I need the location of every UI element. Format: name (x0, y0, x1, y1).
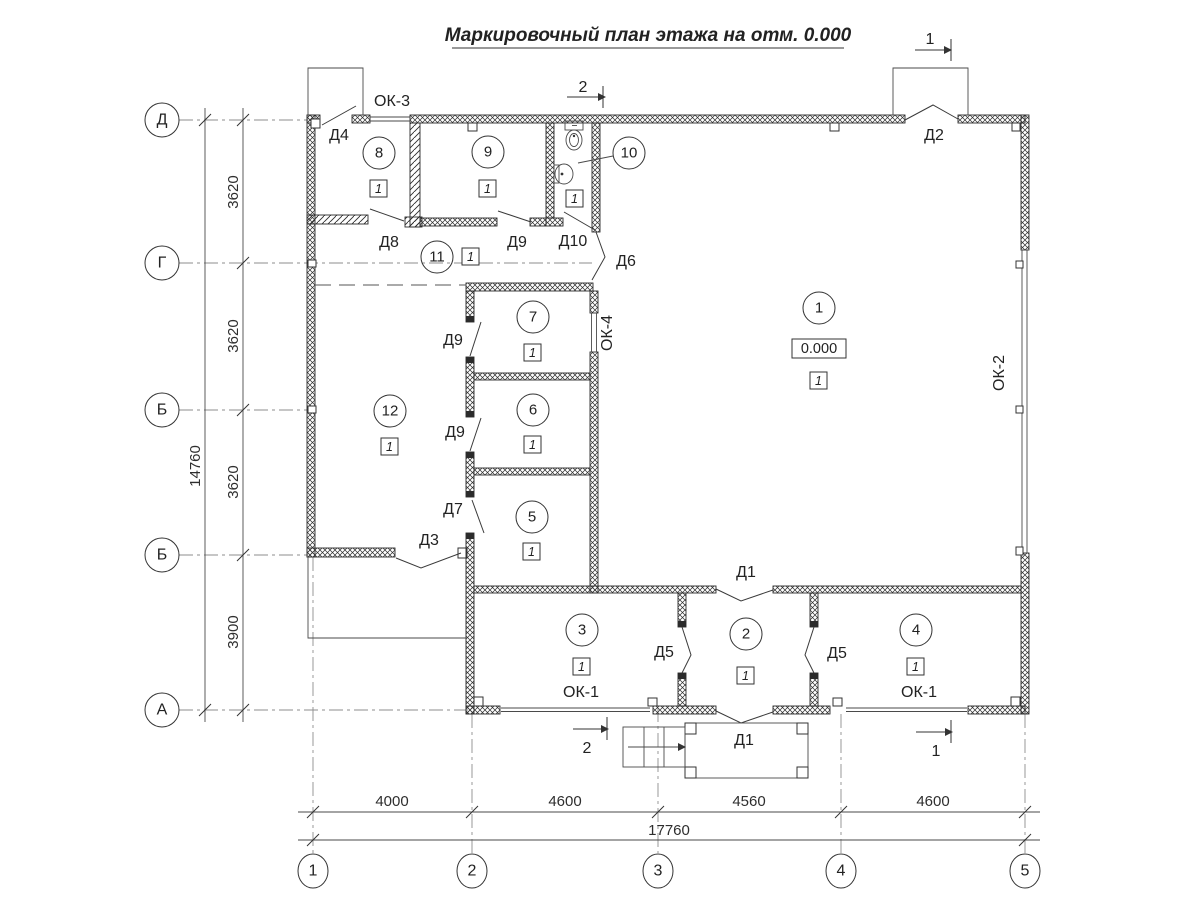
walls (307, 115, 1029, 714)
toilet-dot (573, 135, 575, 137)
wall-notch (830, 123, 839, 131)
door-leaf-d6 (592, 232, 605, 280)
porches (308, 68, 968, 778)
floor-mark-10-value: 1 (571, 192, 578, 206)
jamb-cap (466, 452, 474, 458)
door-leaf-d9-room6 (470, 418, 481, 451)
room-7-number: 7 (529, 309, 537, 326)
floor-mark-9-value: 1 (484, 182, 491, 196)
wall (590, 291, 598, 313)
room-9-number: 9 (484, 144, 492, 161)
wall (466, 452, 474, 497)
window-ok1-room3 (501, 708, 650, 712)
label-d1-inner: Д1 (736, 564, 756, 581)
wall-notch (1012, 123, 1020, 131)
label-d9-room7: Д9 (443, 332, 463, 349)
axis-label-b2: Б (157, 547, 168, 564)
grid-lines (179, 120, 1025, 853)
dim-4600-2: 4600 (916, 793, 949, 810)
dim-3620-1: 3620 (225, 175, 242, 208)
label-ok4: ОК-4 (599, 315, 616, 351)
jamb-cap (466, 411, 474, 417)
axis-label-5: 5 (1021, 863, 1030, 880)
label-d6: Д6 (616, 253, 636, 270)
wall-notch (474, 697, 483, 706)
jamb-cap (466, 533, 474, 539)
section-mark-2-bottom: 2 (573, 717, 609, 757)
label-d5-left: Д5 (654, 644, 674, 661)
floor-mark-8-value: 1 (375, 182, 382, 196)
section-1-label: 1 (932, 743, 941, 760)
label-d10: Д10 (559, 233, 588, 250)
wall (410, 115, 905, 123)
door-leaf-d8 (370, 209, 404, 221)
sink-drain-dot (561, 173, 564, 176)
dim-3620-3: 3620 (225, 465, 242, 498)
dim-3620-2: 3620 (225, 319, 242, 352)
door-jamb (311, 119, 320, 128)
porch-post (797, 723, 808, 734)
floor-mark-1-value: 1 (815, 374, 822, 388)
axis-label-4: 4 (837, 863, 846, 880)
wall (546, 123, 554, 218)
label-d2: Д2 (924, 127, 944, 144)
jamb-cap (810, 621, 818, 627)
bottom-dimension-chain: 4000 4600 4560 4600 17760 (298, 793, 1040, 846)
wall (546, 218, 563, 226)
window-ok1-room4 (846, 708, 967, 712)
label-d3: Д3 (419, 532, 439, 549)
axis-label-3: 3 (654, 863, 663, 880)
label-d4: Д4 (329, 127, 349, 144)
door-leaf-d10 (564, 212, 595, 230)
wall (773, 706, 830, 714)
jamb-cap (466, 357, 474, 363)
room-12-number: 12 (382, 403, 399, 420)
partition (405, 217, 422, 227)
jamb-cap (466, 316, 474, 322)
wall (530, 218, 546, 226)
door-leaf-d9-room7 (470, 322, 481, 356)
door-leaf-d4 (322, 106, 356, 125)
floor-mark-11-value: 1 (467, 250, 474, 264)
left-dimension-chain: 3620 3620 3620 3900 14760 (187, 108, 249, 722)
floor-mark-2-value: 1 (742, 669, 749, 683)
terrace-outline (308, 557, 466, 638)
wall (1021, 553, 1029, 714)
room-4-number: 4 (912, 622, 920, 639)
porch-post (685, 767, 696, 778)
dim-4600-1: 4600 (548, 793, 581, 810)
dim-4000: 4000 (375, 793, 408, 810)
wall (968, 706, 1025, 714)
wall (307, 548, 395, 557)
door-leaf-d9-room9 (498, 211, 531, 222)
floor-mark-7-value: 1 (529, 346, 536, 360)
label-d1-entrance: Д1 (734, 732, 754, 749)
label-d8: Д8 (379, 234, 399, 251)
wall (352, 115, 370, 123)
wall (773, 586, 1021, 593)
wall (474, 468, 590, 475)
wall (653, 706, 716, 714)
wall (307, 115, 315, 557)
section-mark-1-top: 1 (915, 31, 952, 61)
window-ok2 (1016, 250, 1027, 555)
wall (590, 352, 598, 593)
axis-label-2: 2 (468, 863, 477, 880)
axis-label-b1: Б (157, 402, 168, 419)
label-d7: Д7 (443, 501, 463, 518)
room-6-number: 6 (529, 402, 537, 419)
wall (474, 373, 590, 380)
label-ok2: ОК-2 (991, 355, 1008, 391)
wall-notch (833, 698, 842, 706)
door-leaf-d2 (905, 105, 958, 120)
porch-right (893, 68, 968, 115)
axis-label-1: 1 (309, 863, 318, 880)
room-10-number: 10 (621, 145, 638, 162)
elevation-value: 0.000 (801, 341, 837, 357)
door-leaf-d5-left (682, 627, 691, 673)
floor-mark-3-value: 1 (578, 660, 585, 674)
sink-icon (555, 164, 573, 184)
jamb-cap (678, 673, 686, 679)
room-8-number: 8 (375, 145, 383, 162)
porch-left (308, 68, 363, 115)
door-leaf-d3 (396, 553, 461, 568)
wall (466, 357, 474, 417)
door-leaf-d1-entrance (716, 711, 773, 723)
wall-notch (468, 123, 477, 131)
label-d5-right: Д5 (827, 645, 847, 662)
label-ok1-room4: ОК-1 (901, 684, 937, 701)
window-ok4 (592, 313, 597, 352)
floor-mark-12-value: 1 (386, 440, 393, 454)
floor-plan-drawing: Маркировочный план этажа на отм. 0.000 (0, 0, 1200, 900)
door-leaf-d1-inner (716, 589, 773, 601)
label-d9-room9: Д9 (507, 234, 527, 251)
dim-3900: 3900 (225, 615, 242, 648)
label-d9-room6: Д9 (445, 424, 465, 441)
wc-fixtures (554, 121, 583, 184)
room-1-number: 1 (815, 300, 823, 317)
floor-mark-4-value: 1 (912, 660, 919, 674)
section-2-label: 2 (583, 740, 592, 757)
wall (466, 283, 593, 291)
dim-17760: 17760 (648, 822, 690, 839)
room-2-number: 2 (742, 626, 750, 643)
wall-notch (308, 406, 316, 413)
wall (1021, 115, 1029, 250)
room-11-number: 11 (429, 249, 445, 266)
floor-plan-sheet: Маркировочный план этажа на отм. 0.000 (0, 0, 1200, 900)
wall (466, 533, 474, 714)
section-mark-1-bottom: 1 (916, 720, 953, 760)
door-leaf-d7 (472, 500, 484, 533)
wall-notch (648, 698, 657, 706)
section-1-label: 1 (926, 31, 935, 48)
partition (410, 123, 420, 227)
axis-label-g: Г (158, 255, 167, 272)
toilet-bowl-icon (566, 130, 582, 150)
section-2-label: 2 (579, 79, 588, 96)
wall-notch (1011, 697, 1020, 706)
window-ok3 (370, 117, 410, 121)
wall (958, 115, 1025, 123)
porch-post (685, 723, 696, 734)
wall (466, 706, 500, 714)
door-leaf-d5-right (805, 627, 814, 673)
dim-4560: 4560 (732, 793, 765, 810)
wall (474, 586, 716, 593)
porch-post (797, 767, 808, 778)
wall (420, 218, 497, 226)
jamb-cap (810, 673, 818, 679)
section-marks: 2 1 2 1 (567, 31, 953, 760)
axis-label-d: Д (157, 112, 168, 129)
axis-label-a: А (157, 702, 168, 719)
partition (307, 215, 368, 224)
room-5-number: 5 (528, 509, 536, 526)
label-ok3: ОК-3 (374, 93, 410, 110)
wall-notch (308, 260, 316, 267)
room-3-number: 3 (578, 622, 586, 639)
drawing-title: Маркировочный план этажа на отм. 0.000 (445, 25, 852, 46)
floor-mark-6-value: 1 (529, 438, 536, 452)
section-mark-2-top: 2 (567, 79, 606, 108)
floor-mark-5-value: 1 (528, 545, 535, 559)
wall (592, 123, 600, 232)
jamb-cap (678, 621, 686, 627)
jamb-cap (466, 491, 474, 497)
dim-14760: 14760 (187, 445, 204, 487)
label-ok1-room3: ОК-1 (563, 684, 599, 701)
